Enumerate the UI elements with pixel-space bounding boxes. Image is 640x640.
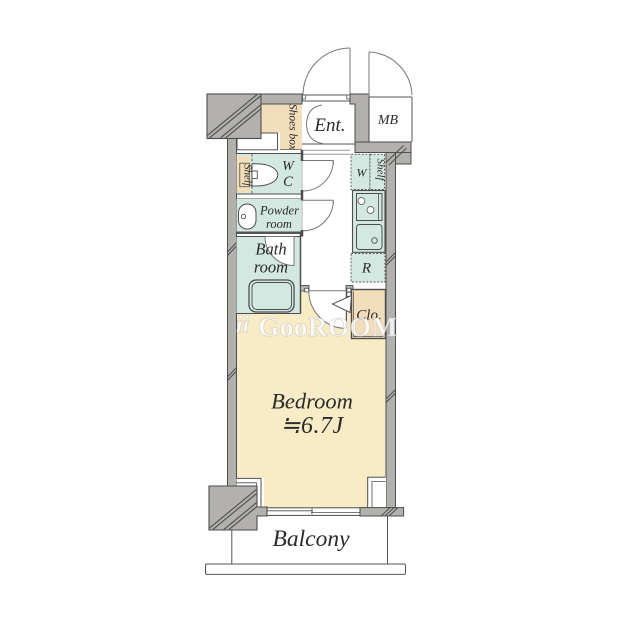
svg-text:Bath: Bath — [255, 240, 286, 259]
svg-text:room: room — [266, 217, 292, 231]
svg-text:ii: ii — [236, 312, 250, 338]
svg-text:Shelf: Shelf — [375, 159, 387, 183]
svg-text:Shoes box: Shoes box — [287, 104, 299, 151]
svg-text:Ent.: Ent. — [313, 115, 345, 136]
svg-text:Bedroom: Bedroom — [271, 389, 353, 414]
svg-text:Powder: Powder — [259, 204, 299, 218]
svg-text:GooROOM: GooROOM — [258, 311, 398, 342]
svg-text:R: R — [361, 261, 371, 277]
svg-text:W: W — [357, 166, 368, 180]
svg-text:Balcony: Balcony — [273, 526, 351, 552]
svg-text:room: room — [254, 258, 288, 277]
svg-text:C: C — [283, 174, 293, 190]
svg-text:≒6.7J: ≒6.7J — [280, 413, 344, 439]
svg-text:MB: MB — [377, 113, 399, 128]
svg-text:W: W — [282, 159, 295, 174]
